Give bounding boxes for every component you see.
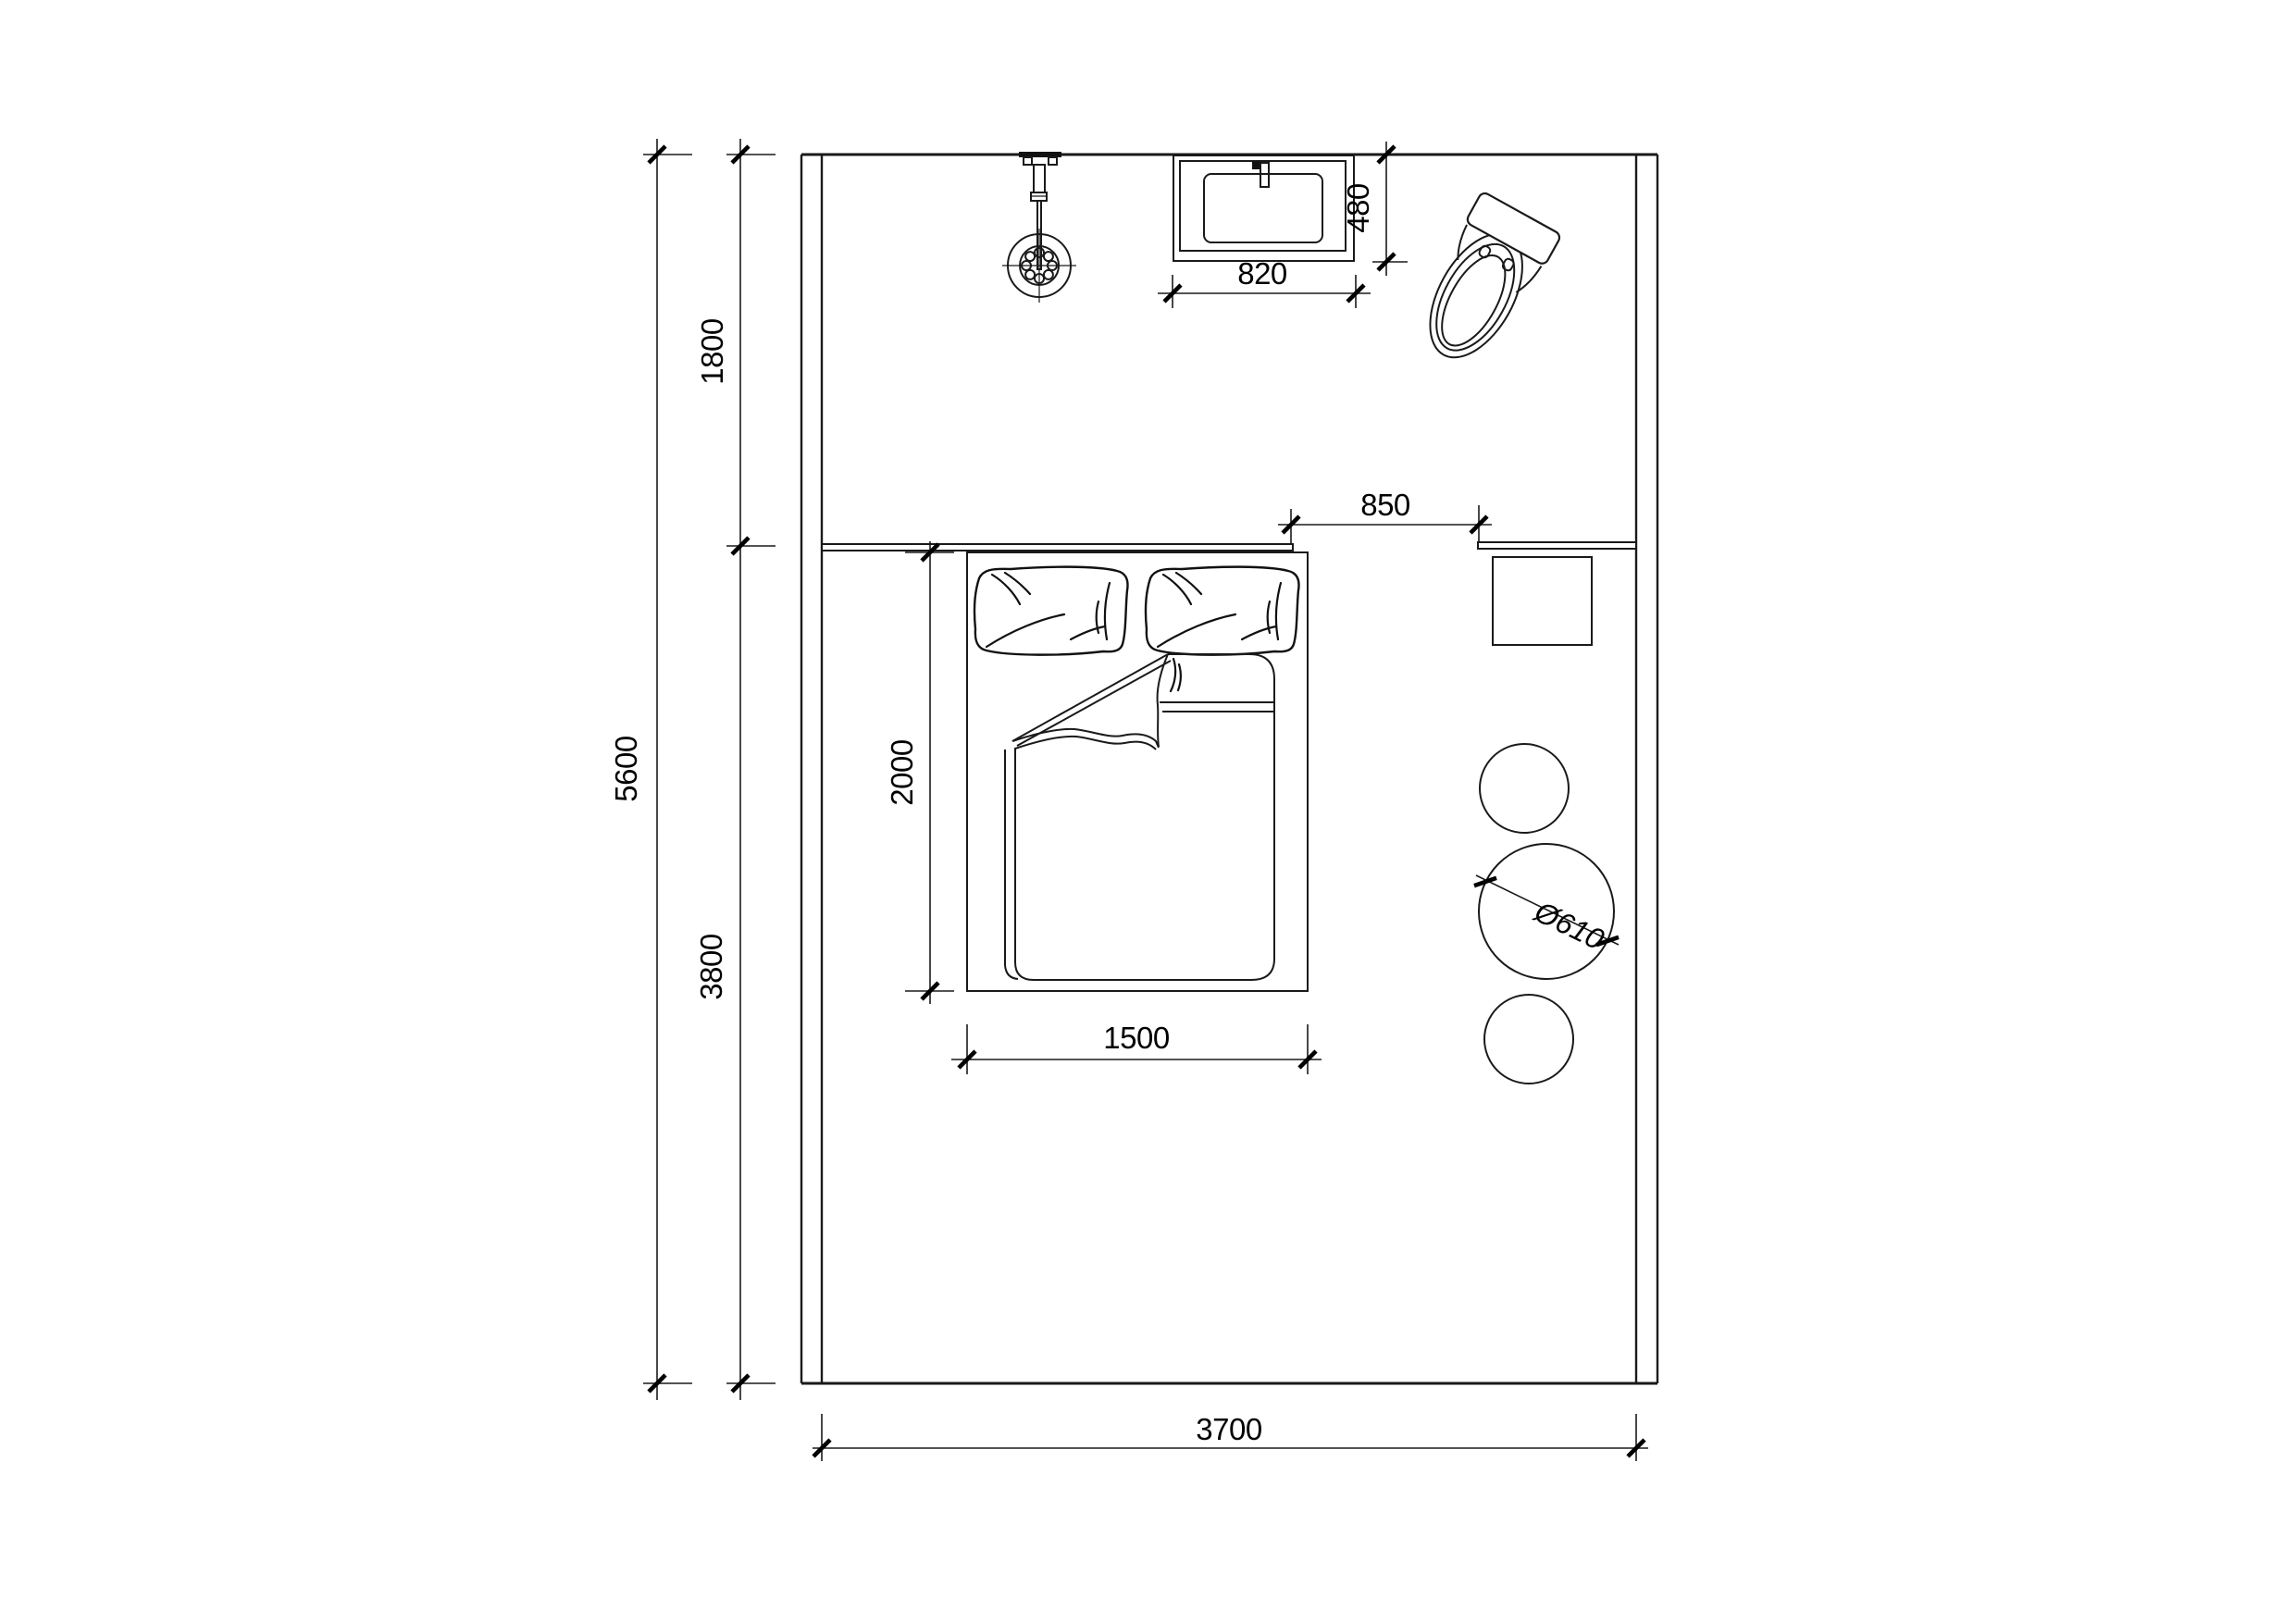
square-stool bbox=[1493, 557, 1592, 645]
dim-zone-depths: 1800 3800 bbox=[694, 139, 776, 1400]
dim-label-3800: 3800 bbox=[694, 934, 728, 1000]
dim-label-3700: 3700 bbox=[1196, 1412, 1262, 1446]
left-wall bbox=[801, 155, 822, 1383]
faucet-handle bbox=[1252, 161, 1260, 169]
shower-arm bbox=[1034, 165, 1045, 192]
dim-opening: 850 bbox=[1278, 488, 1492, 544]
dim-room-depth: 5600 bbox=[609, 139, 692, 1400]
dim-label-850: 850 bbox=[1360, 488, 1410, 522]
floor-plan: 5600 1800 3800 3700 2000 1500 bbox=[0, 0, 2296, 1623]
stool-top bbox=[1480, 744, 1569, 833]
desk-shelf bbox=[1478, 542, 1636, 549]
right-wall bbox=[1636, 155, 1657, 1383]
dim-label-2000: 2000 bbox=[885, 739, 919, 806]
dim-label-820: 820 bbox=[1237, 256, 1287, 291]
dim-vanity-width: 820 bbox=[1158, 256, 1371, 308]
dim-bed-width: 1500 bbox=[951, 1021, 1322, 1074]
dim-label-610: Ø610 bbox=[1529, 894, 1609, 956]
vanity-sink bbox=[1173, 155, 1354, 261]
sink-basin bbox=[1204, 174, 1322, 242]
shower-head bbox=[1002, 152, 1076, 303]
stool-bottom bbox=[1484, 995, 1573, 1084]
dim-bed-length: 2000 bbox=[885, 541, 954, 1004]
dim-label-1500: 1500 bbox=[1103, 1021, 1170, 1055]
pillow-right bbox=[1146, 567, 1298, 655]
dim-room-width: 3700 bbox=[813, 1412, 1648, 1461]
dim-vanity-depth: 480 bbox=[1341, 142, 1408, 276]
pillow-left bbox=[974, 567, 1127, 655]
dim-label-1800: 1800 bbox=[695, 318, 729, 385]
bed bbox=[967, 552, 1308, 991]
dim-label-5600: 5600 bbox=[609, 736, 643, 802]
dim-table-diameter: Ø610 bbox=[1474, 871, 1619, 957]
toilet bbox=[1404, 192, 1562, 378]
duvet bbox=[1005, 654, 1274, 980]
partition-ledge-left bbox=[822, 544, 1293, 551]
duvet-fold bbox=[1012, 654, 1181, 750]
dim-label-480: 480 bbox=[1341, 183, 1375, 233]
